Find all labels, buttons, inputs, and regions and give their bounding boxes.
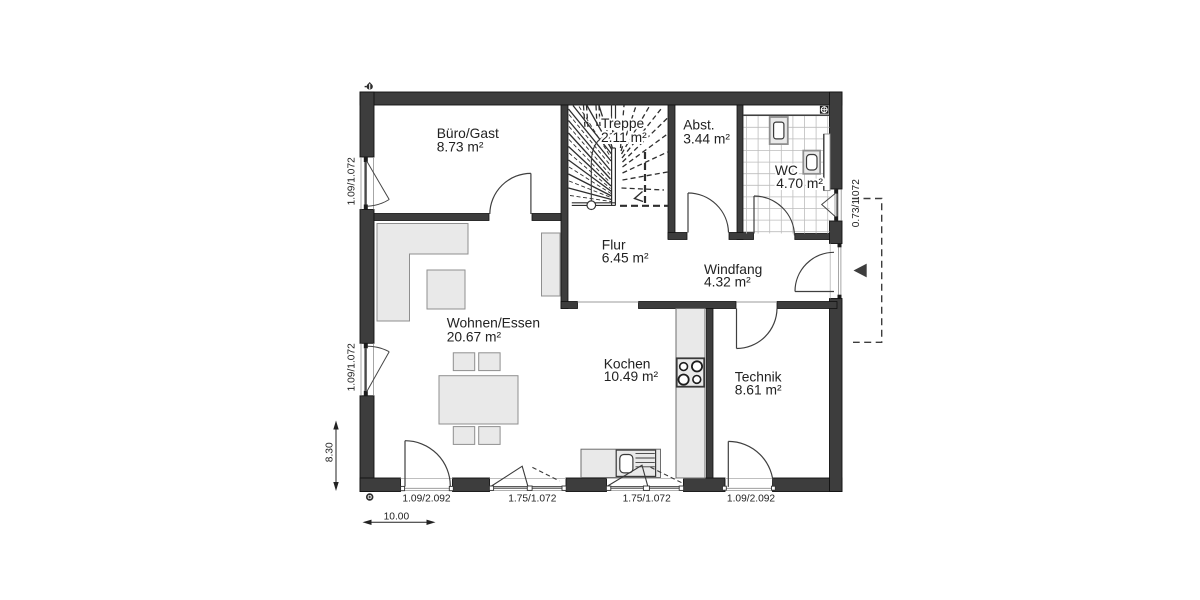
svg-text:Treppe: Treppe [601,116,645,131]
svg-text:1.09/2.092: 1.09/2.092 [727,494,775,505]
svg-text:1.09/1.072: 1.09/1.072 [346,343,357,391]
svg-text:6.45 m²: 6.45 m² [602,250,649,265]
svg-text:20.67 m²: 20.67 m² [447,330,502,345]
svg-text:8.30: 8.30 [325,442,336,462]
svg-text:2.11 m²: 2.11 m² [601,130,647,145]
svg-text:0.73/1.072: 0.73/1.072 [851,179,862,227]
svg-text:1.75/1.072: 1.75/1.072 [508,494,556,505]
svg-text:Abst.: Abst. [683,118,714,133]
svg-text:1.09/2.092: 1.09/2.092 [402,494,450,505]
svg-text:4.32 m²: 4.32 m² [704,275,751,290]
svg-text:4.70 m²: 4.70 m² [776,176,823,191]
svg-text:8.61 m²: 8.61 m² [735,383,782,398]
svg-text:10.49 m²: 10.49 m² [604,369,659,384]
svg-text:1.09/1.072: 1.09/1.072 [346,157,357,205]
svg-text:8.73 m²: 8.73 m² [437,140,484,155]
svg-text:3.44 m²: 3.44 m² [683,131,730,146]
svg-text:10.00: 10.00 [384,512,410,523]
svg-text:1.75/1.072: 1.75/1.072 [623,494,671,505]
svg-text:Wohnen/Essen: Wohnen/Essen [447,315,540,330]
